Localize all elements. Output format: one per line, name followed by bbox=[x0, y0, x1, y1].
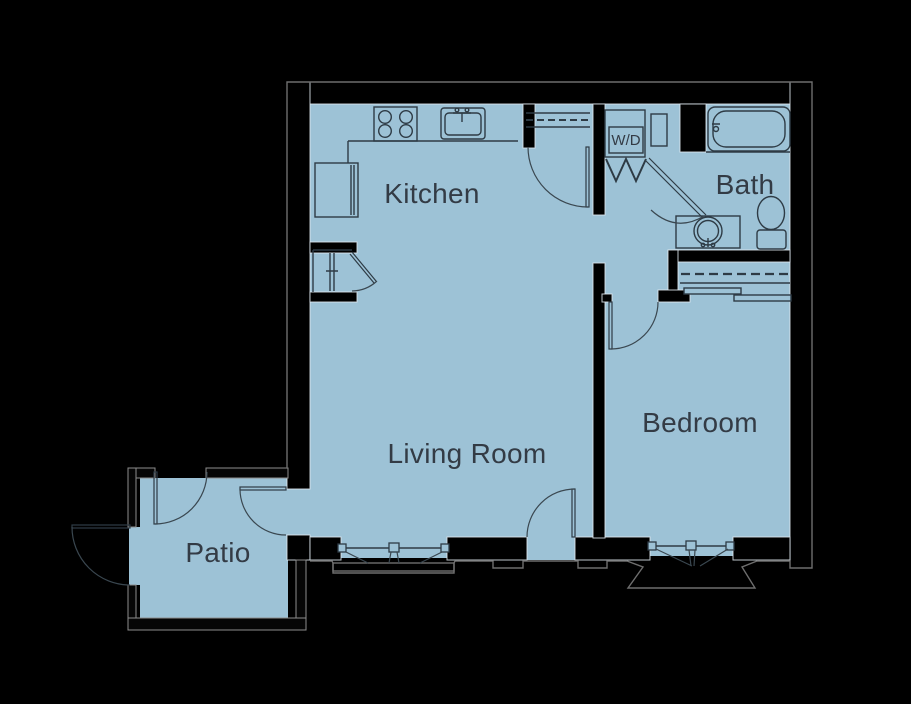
wall-top bbox=[287, 82, 812, 104]
floor-plan-drawing: W/D bbox=[0, 0, 911, 704]
hall-floor bbox=[605, 157, 676, 294]
wall-kitchen-closet-top bbox=[310, 242, 357, 253]
patio-label: Patio bbox=[185, 537, 250, 568]
wall-east bbox=[790, 82, 812, 568]
patio-wall-bottom bbox=[128, 618, 306, 630]
patio-gate-arc bbox=[72, 527, 130, 585]
patio-doorway-floor bbox=[288, 489, 310, 535]
entry-recess bbox=[527, 537, 575, 560]
window-post bbox=[338, 544, 346, 552]
patio-wall-top-right bbox=[206, 468, 288, 478]
wall-laundry-bath bbox=[680, 104, 706, 152]
wall-west-upper bbox=[287, 82, 310, 489]
laundry-label: W/D bbox=[611, 132, 640, 149]
patio-wall-left-upper bbox=[128, 468, 136, 527]
bedroom-doorway-floor bbox=[612, 294, 658, 302]
window-post-center bbox=[389, 543, 399, 552]
wall-south-3 bbox=[575, 537, 650, 560]
window-post bbox=[441, 544, 449, 552]
bedroom-label: Bedroom bbox=[642, 407, 758, 438]
patio-wall-right bbox=[296, 560, 306, 618]
living-room-label: Living Room bbox=[388, 438, 547, 469]
wall-south-1 bbox=[310, 537, 341, 560]
sliding-door-right bbox=[734, 295, 791, 301]
wall-hall-west-upper bbox=[593, 104, 605, 215]
sliding-door-left bbox=[684, 288, 741, 294]
wall-living-bedroom bbox=[593, 263, 605, 538]
window-post-center bbox=[686, 541, 696, 550]
kitchen-living-floor bbox=[310, 104, 593, 537]
wall-kitchen-closet-bottom bbox=[310, 292, 357, 302]
outline-entry-stoop bbox=[455, 561, 627, 568]
kitchen-label: Kitchen bbox=[384, 178, 480, 209]
living-bay-box bbox=[333, 563, 454, 571]
bath-label: Bath bbox=[716, 169, 775, 200]
patio-gate-leaf bbox=[72, 525, 130, 528]
wall-south-4 bbox=[733, 537, 790, 560]
hall-opening-floor bbox=[593, 215, 605, 263]
wall-west-lower bbox=[287, 535, 310, 560]
wall-bedroom-north-left bbox=[602, 294, 612, 302]
wall-south-2 bbox=[447, 537, 527, 560]
floor-plan-canvas: W/D bbox=[0, 0, 911, 704]
outline-bedroom-bay bbox=[627, 561, 757, 588]
patio-wall-left-lower bbox=[128, 585, 136, 622]
wall-bath-south bbox=[668, 250, 790, 262]
patio-gate-opening bbox=[129, 527, 140, 585]
wall-pantry-stub bbox=[523, 104, 535, 148]
window-post bbox=[648, 542, 656, 550]
